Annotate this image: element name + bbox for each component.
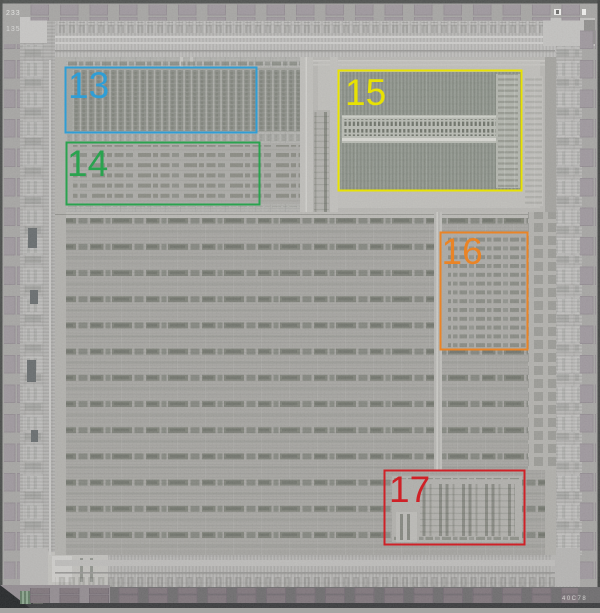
svg-text:17: 17 — [389, 469, 430, 510]
svg-text:15: 15 — [345, 72, 386, 113]
svg-text:13: 13 — [68, 65, 109, 106]
svg-text:16: 16 — [442, 231, 483, 272]
svg-text:14: 14 — [67, 143, 108, 184]
